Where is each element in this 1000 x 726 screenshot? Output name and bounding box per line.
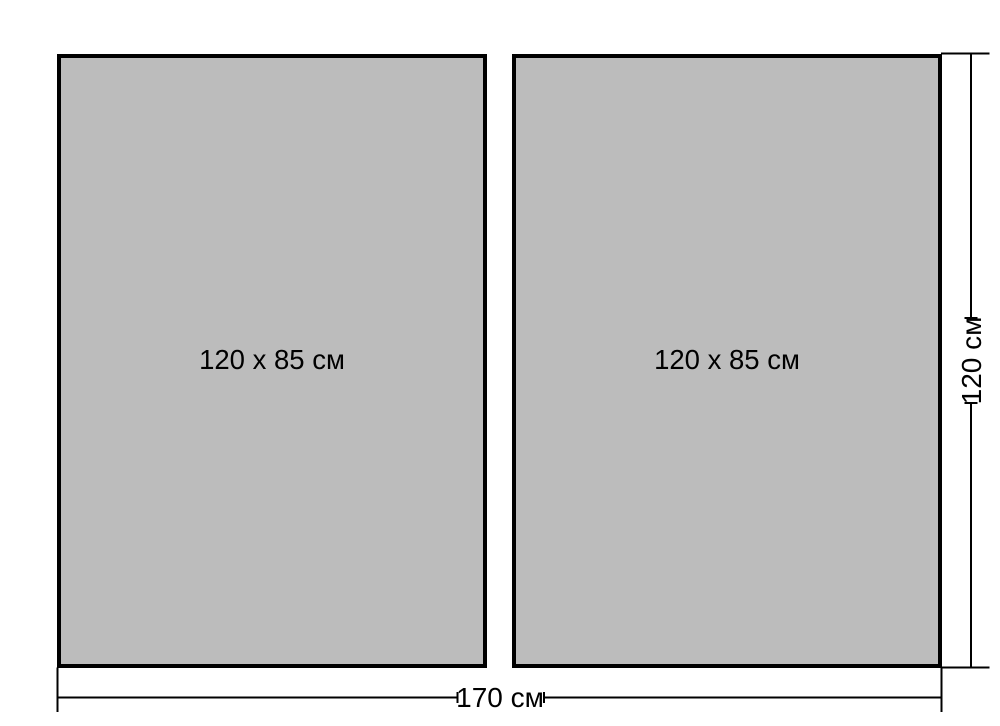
svg-text:120 x 85 см: 120 x 85 см: [654, 344, 800, 375]
svg-text:120 см: 120 см: [956, 317, 987, 405]
svg-text:170 см: 170 см: [456, 682, 544, 713]
svg-text:120 x 85 см: 120 x 85 см: [199, 344, 345, 375]
